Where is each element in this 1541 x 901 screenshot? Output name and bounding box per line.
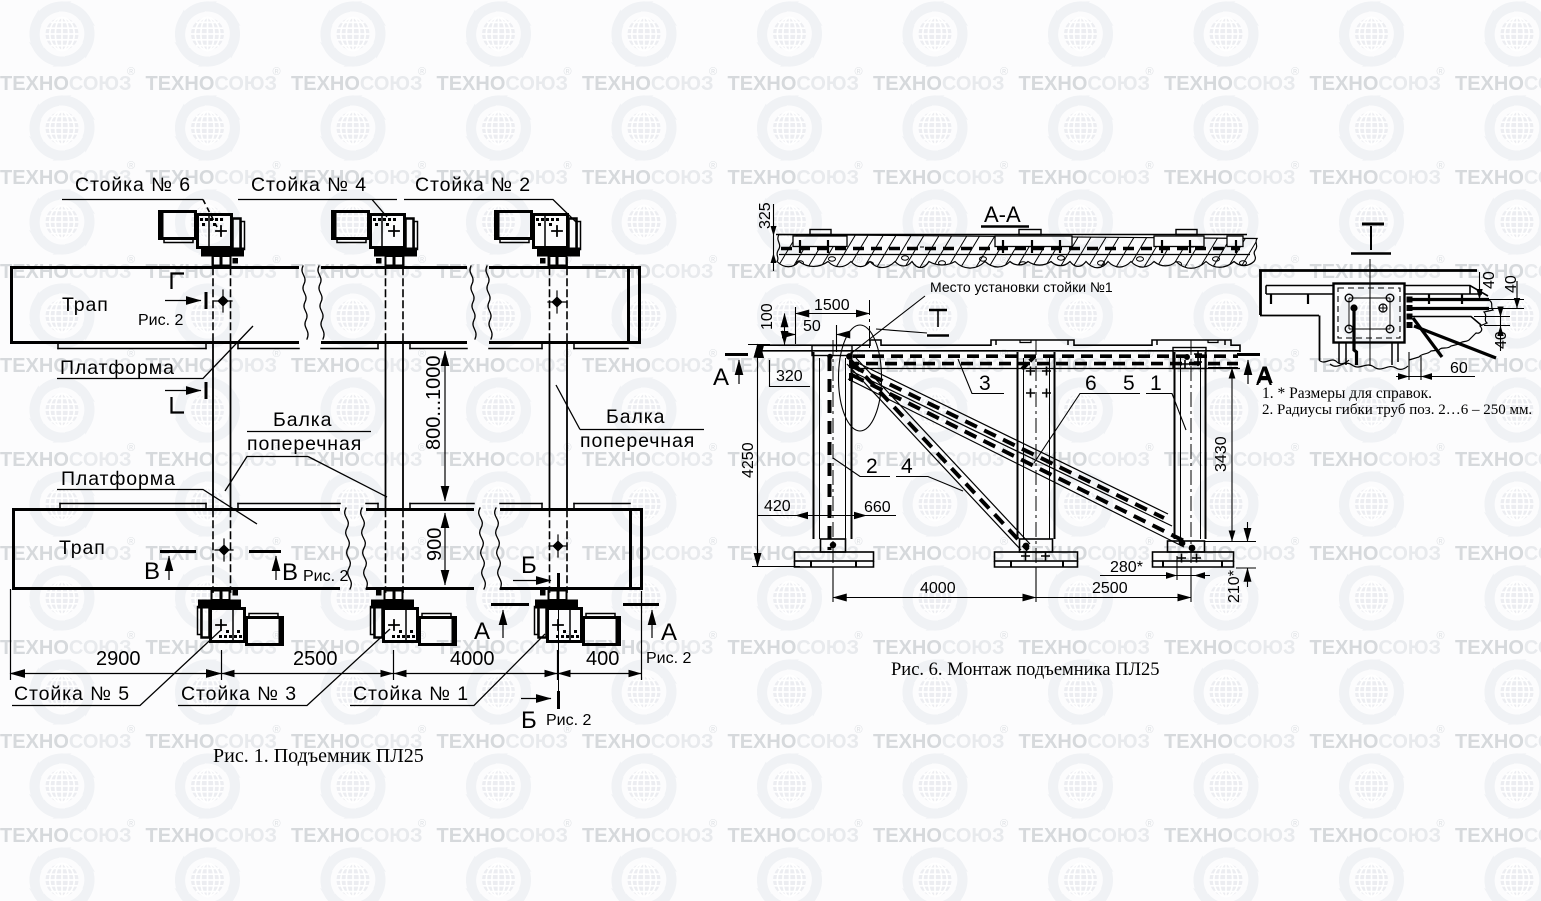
svg-text:Б: Б: [521, 552, 537, 579]
svg-text:800...1000: 800...1000: [423, 355, 445, 450]
svg-text:3: 3: [979, 372, 991, 395]
svg-text:Платформа: Платформа: [60, 357, 175, 379]
svg-text:А: А: [474, 618, 490, 645]
svg-text:А: А: [661, 619, 677, 646]
svg-text:2: 2: [866, 455, 878, 478]
svg-text:50: 50: [803, 318, 821, 335]
svg-text:Место установки стойки №1: Место установки стойки №1: [930, 279, 1113, 295]
svg-text:4000: 4000: [450, 648, 495, 670]
svg-text:2. Радиусы гибки труб поз. 2…6: 2. Радиусы гибки труб поз. 2…6 – 250 мм.: [1262, 402, 1532, 418]
svg-text:325: 325: [757, 202, 774, 229]
svg-text:320: 320: [776, 368, 803, 385]
svg-text:А: А: [713, 364, 729, 391]
svg-text:4250: 4250: [740, 442, 757, 478]
svg-text:1500: 1500: [814, 297, 850, 314]
svg-text:280*: 280*: [1110, 559, 1143, 576]
svg-text:2900: 2900: [96, 648, 141, 670]
svg-text:Стойка № 6: Стойка № 6: [75, 174, 191, 196]
svg-text:Рис. 1. Подъемник ПЛ25: Рис. 1. Подъемник ПЛ25: [213, 745, 424, 767]
svg-text:Стойка № 3: Стойка № 3: [181, 683, 297, 705]
svg-text:Трап: Трап: [62, 294, 109, 316]
svg-text:Стойка № 2: Стойка № 2: [415, 174, 531, 196]
svg-text:5: 5: [1123, 372, 1135, 395]
svg-text:6: 6: [1085, 372, 1097, 395]
svg-text:1: 1: [1150, 372, 1162, 395]
svg-text:40: 40: [1503, 275, 1520, 293]
svg-text:40: 40: [1481, 271, 1498, 289]
svg-text:100: 100: [759, 303, 776, 330]
svg-text:400: 400: [586, 648, 619, 670]
svg-text:Рис. 2: Рис. 2: [138, 312, 184, 329]
svg-text:Рис. 6. Монтаж подъемника ПЛ25: Рис. 6. Монтаж подъемника ПЛ25: [891, 660, 1160, 680]
svg-text:Стойка № 5: Стойка № 5: [14, 683, 130, 705]
svg-text:В: В: [282, 559, 298, 586]
svg-text:Балка: Балка: [273, 409, 332, 431]
svg-text:поперечная: поперечная: [580, 430, 695, 452]
svg-text:660: 660: [864, 499, 891, 516]
svg-text:4: 4: [901, 455, 913, 478]
svg-text:Б: Б: [521, 707, 537, 734]
svg-text:Рис. 2: Рис. 2: [303, 568, 349, 585]
svg-text:Стойка № 1: Стойка № 1: [353, 683, 469, 705]
svg-text:2500: 2500: [293, 648, 338, 670]
svg-text:Платформа: Платформа: [61, 468, 176, 490]
svg-text:А-А: А-А: [984, 202, 1021, 227]
svg-text:210*: 210*: [1226, 570, 1243, 603]
svg-text:Стойка № 4: Стойка № 4: [251, 174, 367, 196]
svg-text:2500: 2500: [1092, 580, 1128, 597]
svg-text:60: 60: [1450, 360, 1468, 377]
svg-text:В: В: [144, 558, 160, 585]
svg-text:1. * Размеры для справок.: 1. * Размеры для справок.: [1262, 385, 1432, 402]
svg-text:420: 420: [764, 498, 791, 515]
svg-text:40: 40: [1493, 331, 1510, 349]
svg-text:900: 900: [424, 528, 446, 561]
svg-text:4000: 4000: [920, 580, 956, 597]
svg-text:Трап: Трап: [59, 537, 106, 559]
svg-text:поперечная: поперечная: [247, 433, 362, 455]
svg-text:Балка: Балка: [606, 406, 665, 428]
svg-text:3430: 3430: [1213, 436, 1230, 472]
svg-text:Рис. 2: Рис. 2: [546, 712, 592, 729]
svg-text:Рис. 2: Рис. 2: [646, 650, 692, 667]
